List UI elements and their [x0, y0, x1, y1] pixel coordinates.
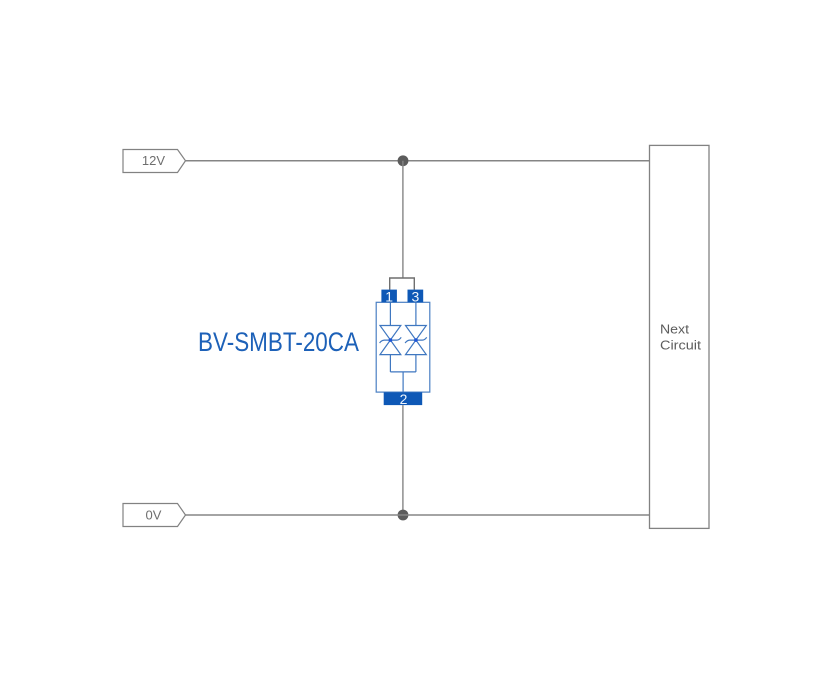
- svg-text:Circuit: Circuit: [660, 338, 701, 353]
- svg-text:Next: Next: [660, 322, 689, 337]
- svg-text:2: 2: [400, 391, 408, 407]
- svg-text:1: 1: [385, 289, 393, 305]
- svg-text:BV-SMBT-20CA: BV-SMBT-20CA: [198, 327, 359, 357]
- svg-text:3: 3: [412, 289, 420, 305]
- svg-text:0V: 0V: [146, 507, 162, 522]
- svg-text:12V: 12V: [142, 153, 165, 168]
